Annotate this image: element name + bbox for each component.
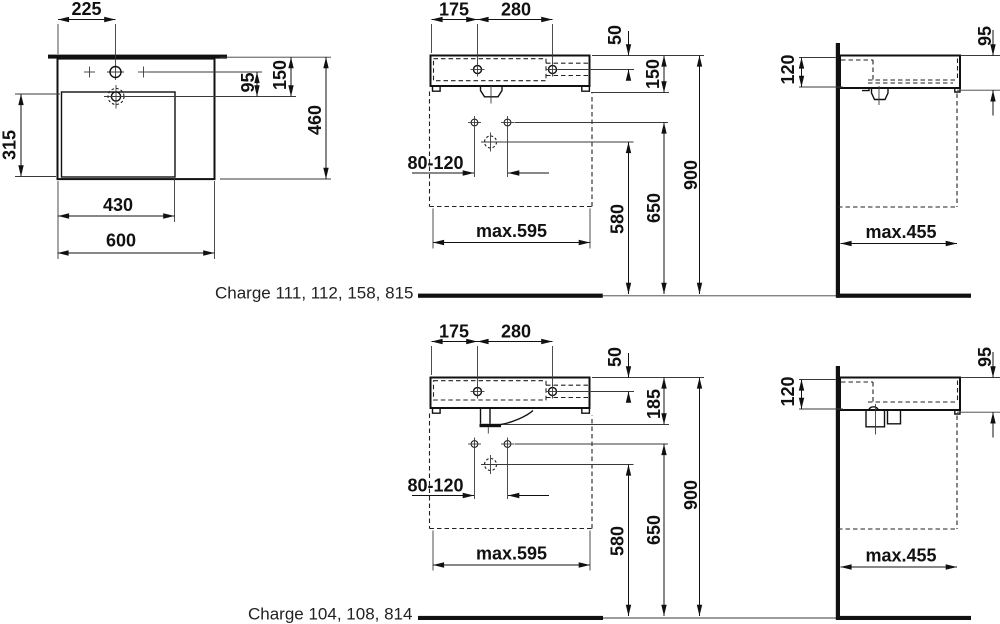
front2-waste-mark: [481, 455, 500, 474]
front1-basin-hidden: [434, 59, 547, 81]
front2-install-zone: [430, 414, 593, 529]
side1-basin-hidden: [841, 59, 958, 84]
variant-label-row2: Charge 104, 108, 814: [248, 605, 412, 624]
dim-900-r2: 900: [681, 480, 701, 510]
front1-anchor-holes: [468, 116, 514, 177]
front-view-1: 175 280 50 150 80-120 580 650 900 max.59…: [407, 0, 837, 298]
drawing-canvas: 225 315 95 150 460 430 600 Charge 111, 1…: [0, 0, 1000, 624]
dim-95-side-r2: 95: [975, 347, 995, 367]
dim-650-r2: 650: [644, 515, 664, 545]
dim-50-r2: 50: [605, 347, 625, 367]
dim-max455-r1: max.455: [865, 222, 936, 242]
dim-315: 315: [0, 130, 20, 160]
dim-280-r1: 280: [501, 0, 531, 20]
dim-max455-r2: max.455: [865, 546, 936, 566]
front1-install-zone: [430, 92, 593, 207]
side1-floor: [837, 294, 971, 298]
dim-150-r1: 150: [643, 59, 663, 89]
front-view-2: 175 280 50 185 80-120 580 650 900 max.59…: [407, 322, 837, 621]
dim-50-r1: 50: [605, 25, 625, 45]
dim-580-r2: 580: [608, 526, 628, 556]
dim-150-plan: 150: [270, 60, 290, 90]
dim-600: 600: [106, 231, 136, 251]
side1-install-zone: [838, 94, 957, 208]
side-view-2: 95 120 max.455: [778, 347, 1000, 620]
plan-drain-mark: [104, 85, 129, 109]
dim-185-r2: 185: [644, 389, 664, 419]
dim-120-r2: 120: [778, 376, 798, 406]
front2-overflow-channel: [480, 408, 534, 434]
dim-95-side-r1: 95: [975, 26, 995, 46]
front2-basin-hidden: [434, 381, 547, 400]
dim-280-r2: 280: [501, 322, 531, 342]
dim-max595-r2: max.595: [476, 544, 547, 564]
side-view-1: 95 120 max.455: [778, 26, 1000, 298]
front1-body: [431, 56, 590, 87]
side2-install-zone: [838, 416, 957, 530]
dim-80-120-r2: 80-120: [407, 476, 463, 496]
dim-650-r1: 650: [644, 193, 664, 223]
dim-580-r1: 580: [608, 204, 628, 234]
front2-anchor-holes: [468, 438, 514, 500]
side1-extension-lines: [799, 56, 1000, 91]
variant-label-row1: Charge 111, 112, 158, 815: [215, 284, 414, 303]
plan-tap-hole: [107, 24, 124, 80]
technical-drawing-sheet: 225 315 95 150 460 430 600 Charge 111, 1…: [0, 0, 1000, 624]
front2-body: [431, 378, 590, 409]
dim-460: 460: [305, 105, 325, 135]
front1-floor-line: [418, 294, 603, 298]
front2-floor-line: [418, 616, 603, 620]
side2-basin-hidden: [841, 381, 958, 403]
plan-outer-rim: [58, 59, 215, 180]
dim-95-plan: 95: [238, 72, 258, 92]
dim-430: 430: [103, 195, 133, 215]
front1-waste-mark: [481, 133, 500, 152]
dim-900-r1: 900: [681, 160, 701, 190]
side2-siphon: [866, 404, 901, 435]
side2-floor: [837, 616, 971, 620]
dim-120-r1: 120: [778, 54, 798, 84]
dim-175-r1: 175: [439, 0, 469, 20]
plan-view: 225 315 95 150 460 430 600: [0, 0, 331, 259]
side2-extension-lines: [799, 378, 1000, 413]
dim-max595-r1: max.595: [476, 221, 547, 241]
dim-175-r2: 175: [439, 322, 469, 342]
dim-80-120-r1: 80-120: [407, 153, 463, 173]
dim-225: 225: [71, 0, 101, 19]
plan-basin-outline: [62, 92, 176, 177]
